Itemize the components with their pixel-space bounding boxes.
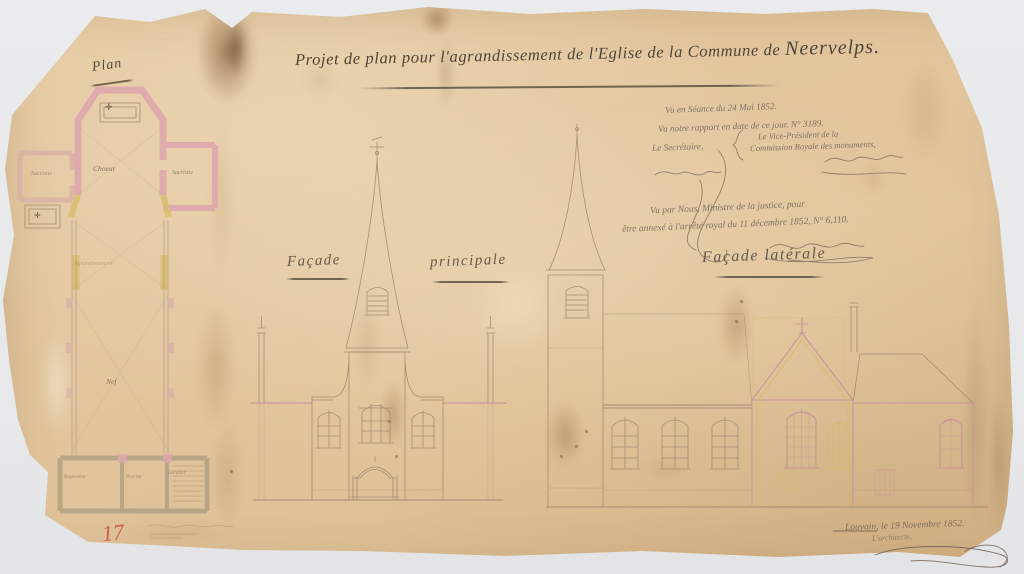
- plan-nave-walls: [72, 220, 168, 458]
- facade-laterale-drawing: [540, 118, 1018, 513]
- yellow-barred-window: [777, 472, 796, 490]
- transept-pediment: [752, 333, 853, 400]
- plan-buttresses: [66, 298, 174, 398]
- nave-eaves: [603, 405, 752, 408]
- crypt-window: [875, 470, 894, 495]
- stain: [225, 18, 247, 78]
- stain: [420, 2, 454, 36]
- tower-spire: [546, 136, 606, 275]
- transept-yellow-raking: [758, 340, 847, 400]
- plan-yellow-walls: [71, 195, 169, 290]
- architect-signature: [875, 547, 1008, 568]
- room-label-choir: Choeur: [93, 164, 116, 173]
- nave-window-2: [660, 417, 690, 469]
- architect-signature-loop: [965, 545, 1007, 567]
- post-bases: [259, 403, 493, 500]
- altar-cross-symbol: ✛: [105, 102, 113, 113]
- scan-background: Projet de plan pour l'agrandissement de …: [0, 0, 1024, 574]
- chimney: [849, 303, 859, 352]
- belfry-louver: [564, 287, 590, 319]
- left-wing-window: [316, 411, 342, 448]
- plan-drawing: [8, 70, 233, 525]
- facade-principale-drawing: [245, 120, 510, 505]
- sheet-title-commune: Neervelps.: [785, 36, 880, 60]
- choir-roof: [853, 354, 973, 403]
- transept-door: [826, 421, 851, 469]
- transept-window-lattice: [787, 408, 816, 467]
- tower-ledges: [548, 348, 603, 488]
- footer-signature-overlay: [815, 515, 1020, 573]
- plan-new-walls: [72, 90, 215, 208]
- room-label-sacristy-left: Sacristie: [31, 171, 52, 177]
- plan-altar: [25, 103, 140, 228]
- nave-window-1: [610, 417, 640, 469]
- room-label-porch: Porche: [126, 474, 141, 480]
- central-window: [359, 404, 393, 443]
- left-wing: [312, 360, 349, 500]
- transept-cross: [796, 318, 808, 333]
- folio-number: 17: [101, 519, 126, 547]
- spire: [344, 160, 410, 352]
- room-label-baptistery: Baptistère: [64, 474, 86, 480]
- annex-cross-symbol: ✛: [34, 211, 41, 220]
- belfry-louver: [365, 288, 390, 316]
- transept-yellow-posts: [757, 400, 848, 505]
- cross-finial: [370, 137, 384, 160]
- right-wing-window: [410, 411, 436, 448]
- room-label-sacristy-right: Sacristie: [172, 170, 193, 176]
- room-label-nave: Nef: [106, 377, 116, 386]
- stamp-smudge: [140, 518, 270, 544]
- room-label-stairs: Escalier: [168, 470, 186, 476]
- right-wing: [405, 360, 443, 500]
- nave-window-3: [710, 417, 740, 469]
- room-label-crossing: Agrandissement: [74, 261, 113, 267]
- main-door: [351, 457, 399, 500]
- right-post: [486, 316, 495, 403]
- choir-window-lattice: [940, 417, 962, 467]
- plan-construction-lines: [72, 127, 168, 450]
- nave-ridge: [603, 314, 752, 405]
- transept-walls: [752, 400, 853, 505]
- left-post: [257, 316, 266, 403]
